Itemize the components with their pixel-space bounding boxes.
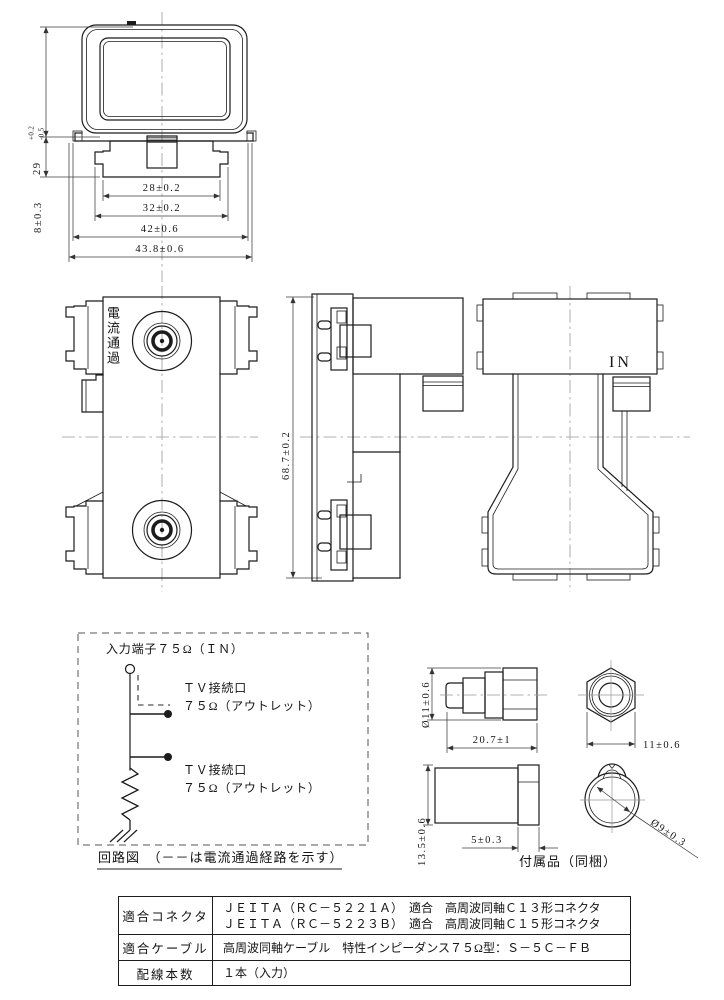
in-port-label: IN [609, 354, 632, 371]
spec-table: 適合コネクタ ＪＥＩＴＡ（ＲＣ－５２２１Ａ） 適合 高周波同軸Ｃ１３形コネクタ … [118, 896, 631, 986]
dim-ring-diameter: Ø9±0.3 [648, 817, 688, 849]
front-view [62, 286, 258, 592]
top-view: 29 +0.2 -0.5 8±0.3 28±0.2 32±0.2 42±0.6 … [28, 12, 257, 282]
dim-32: 32±0.2 [143, 203, 181, 214]
dim-cover-height-tol-minus: -0.5 [38, 127, 46, 140]
ground-symbol [110, 820, 137, 842]
dim-plug-length: 20.7±1 [473, 735, 511, 746]
outlet1-impedance: ７５Ω（アウトレット） [183, 699, 321, 713]
spec-label-wire-count: 配線本数 [119, 961, 213, 985]
accessories: Ø11±0.6 20.7±1 11±0.6 13.5±0.6 5±0.3 [417, 660, 698, 869]
circuit-diagram: 入力端子７５Ω（ＩＮ） ＴＶ接続口 ７５Ω（アウトレット） ＴＶ接続口 ７５Ω（… [78, 633, 368, 869]
outlet2-label: ＴＶ接続口 [183, 762, 247, 777]
spec-value-line: 高周波同軸ケーブル 特性インピーダンス７５Ω型：Ｓ－５Ｃ－ＦＢ [223, 940, 626, 956]
spec-value-line: ＪＥＩＴＡ（ＲＣ－５２２１Ａ） 適合 高周波同軸Ｃ１３形コネクタ [223, 900, 626, 916]
spec-value-cable: 高周波同軸ケーブル 特性インピーダンス７５Ω型：Ｓ－５Ｃ－ＦＢ [213, 935, 630, 960]
dim-cover-height-tol-plus: +0.2 [28, 126, 36, 140]
current-pass-label: 電流通過 [104, 306, 121, 366]
technical-drawing-sheet: 29 +0.2 -0.5 8±0.3 28±0.2 32±0.2 42±0.6 … [0, 0, 724, 1000]
dim-cap-height: 13.5±0.6 [417, 817, 428, 866]
dim-cap-thickness: 5±0.3 [471, 835, 503, 846]
circuit-caption: 回路図 （－－は電流通過経路を示す） [98, 850, 344, 865]
current-pass-path [138, 675, 170, 705]
spec-value-connector: ＪＥＩＴＡ（ＲＣ－５２２１Ａ） 適合 高周波同軸Ｃ１３形コネクタ ＪＥＩＴＡ（Ｒ… [213, 897, 630, 934]
table-row: 配線本数 １本（入力） [119, 960, 630, 985]
dim-overall-height: 68.7±0.2 [281, 431, 292, 480]
dim-42: 42±0.6 [141, 224, 179, 235]
resistor-symbol [122, 768, 138, 820]
spec-label-cable: 適合ケーブル [119, 935, 213, 960]
spec-value-line: ＪＥＩＴＡ（ＲＣ－５２２３Ｂ） 適合 高周波同軸Ｃ１５形コネクタ [223, 916, 626, 932]
dim-cover-height: 29 [32, 162, 43, 176]
accessories-caption: 付属品（同梱） [519, 854, 617, 869]
spec-value-wire-count: １本（入力） [213, 961, 630, 985]
dim-nut-width: 11±0.6 [643, 740, 681, 751]
dim-plug-diameter: Ø11±0.6 [421, 681, 432, 728]
outlet2-impedance: ７５Ω（アウトレット） [183, 781, 321, 795]
side-view: 68.7±0.2 [281, 294, 470, 581]
circuit-input-label: 入力端子７５Ω（ＩＮ） [106, 642, 244, 656]
table-row: 適合ケーブル 高周波同軸ケーブル 特性インピーダンス７５Ω型：Ｓ－５Ｃ－ＦＢ [119, 934, 630, 960]
spec-label-connector: 適合コネクタ [119, 897, 213, 934]
outlet1-label: ＴＶ接続口 [183, 680, 247, 695]
dim-body-height: 8±0.3 [33, 201, 44, 233]
drawing-canvas: 29 +0.2 -0.5 8±0.3 28±0.2 32±0.2 42±0.6 … [0, 0, 724, 1000]
dim-43-8: 43.8±0.6 [135, 244, 184, 255]
table-row: 適合コネクタ ＪＥＩＴＡ（ＲＣ－５２２１Ａ） 適合 高周波同軸Ｃ１３形コネクタ … [119, 897, 630, 934]
dim-28: 28±0.2 [143, 183, 181, 194]
back-view: IN [472, 286, 690, 592]
spec-value-line: １本（入力） [223, 965, 626, 981]
